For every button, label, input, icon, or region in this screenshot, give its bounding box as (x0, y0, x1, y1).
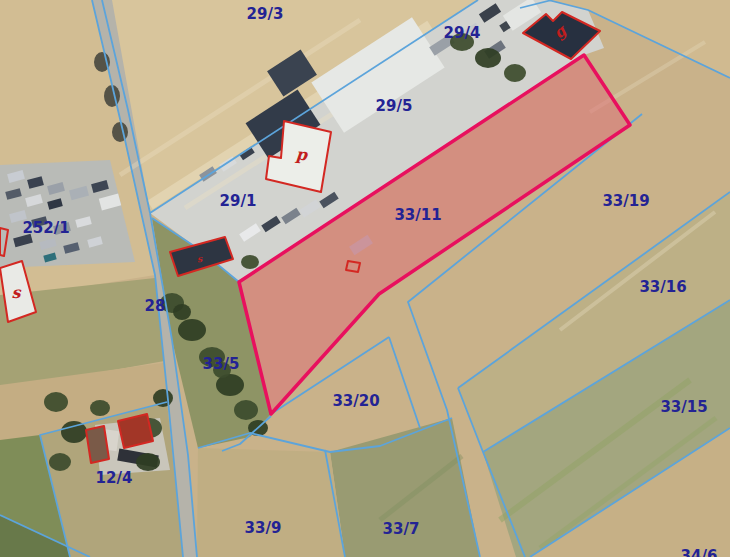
tree-cluster (44, 392, 68, 412)
parcel-label-33-7[interactable]: 33/7 (383, 520, 420, 538)
parcel-label-29-1[interactable]: 29/1 (220, 192, 257, 210)
parcel-label-33-20[interactable]: 33/20 (332, 392, 379, 410)
map-viewport[interactable]: sspg29/329/429/529/1252/133/1133/1933/16… (0, 0, 730, 557)
parcel-label-29-3[interactable]: 29/3 (247, 5, 284, 23)
building-s-large-letter: s (11, 283, 21, 302)
parcel-label-33-19[interactable]: 33/19 (602, 192, 649, 210)
parcel-label-33-11[interactable]: 33/11 (394, 206, 441, 224)
tree-cluster (178, 319, 206, 341)
tree-cluster (504, 64, 526, 82)
tree-cluster (49, 453, 71, 471)
tree-cluster (475, 48, 501, 68)
building-farm-a (86, 426, 109, 463)
parcel-label-29-4[interactable]: 29/4 (444, 24, 481, 42)
tree-cluster (136, 453, 160, 471)
parcel-label-29-5[interactable]: 29/5 (376, 97, 413, 115)
parcel-label-12-4[interactable]: 12/4 (96, 469, 133, 487)
parcel-label-33-9[interactable]: 33/9 (245, 519, 282, 537)
tree-cluster (234, 400, 258, 420)
tree-cluster (173, 304, 191, 320)
parcel-label-252-1[interactable]: 252/1 (22, 219, 69, 237)
parcel-label-34-6[interactable]: 34/6 (681, 547, 718, 557)
tree-cluster (90, 400, 110, 416)
parcel-label-28[interactable]: 28 (145, 297, 166, 315)
cadastral-aerial-map[interactable]: sspg29/329/429/529/1252/133/1133/1933/16… (0, 0, 730, 557)
parcel-label-33-5[interactable]: 33/5 (203, 355, 240, 373)
building-farm-b (118, 414, 153, 448)
parcel-label-33-15[interactable]: 33/15 (660, 398, 707, 416)
parcel-label-33-16[interactable]: 33/16 (639, 278, 686, 296)
field-33-9 (197, 448, 345, 557)
tree-cluster (241, 255, 259, 269)
